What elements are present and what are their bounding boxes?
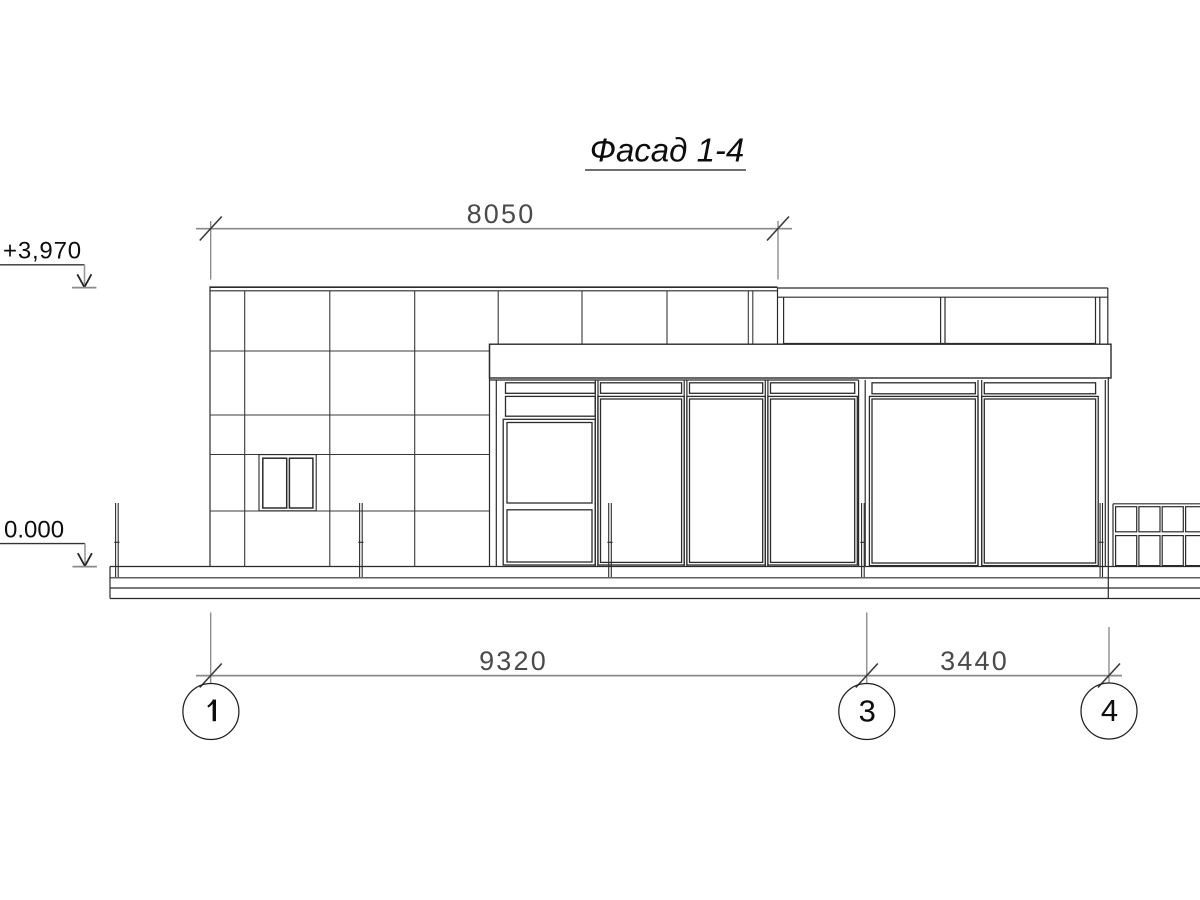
svg-text:8050: 8050 [467, 199, 536, 229]
svg-text:Фасад 1-4: Фасад 1-4 [590, 132, 745, 169]
svg-text:+3,970: +3,970 [3, 238, 82, 265]
svg-text:3: 3 [859, 693, 876, 728]
svg-text:3440: 3440 [940, 646, 1009, 676]
svg-text:4: 4 [1101, 693, 1118, 728]
svg-text:9320: 9320 [479, 646, 548, 676]
svg-text:0.000: 0.000 [4, 517, 64, 544]
